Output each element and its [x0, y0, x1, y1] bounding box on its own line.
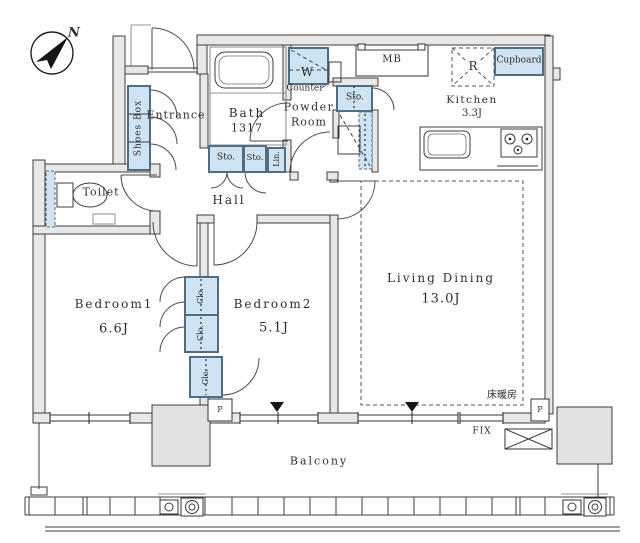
windows	[50, 412, 503, 424]
cupboard-label: Cupboard	[496, 57, 541, 66]
kitchen-counter	[420, 127, 542, 170]
pipe-space-label-2: P	[537, 406, 542, 414]
closet-label-2: Clo.	[197, 325, 205, 341]
pipe-space-label-1: P	[217, 406, 222, 414]
floor-plan: N Shoes Box Entrance Bath 1317 W Counter…	[0, 0, 640, 543]
north-label: N	[68, 27, 80, 40]
bath-size-label: 1317	[231, 123, 263, 134]
marker-triangle-2	[405, 402, 419, 412]
drain-right	[563, 498, 606, 516]
powder-room-door	[290, 132, 330, 172]
pillar-right	[557, 407, 612, 464]
pillar-left	[152, 405, 210, 466]
window-markers	[270, 402, 419, 412]
bedroom2-size-label: 5.1J	[259, 322, 289, 335]
toilet-label: Toilet	[82, 187, 119, 198]
storage-label-2: Sto.	[247, 154, 264, 163]
hall-storage-doors	[211, 172, 266, 193]
toilet-door	[121, 175, 157, 211]
shoes-box-label: Shoes Box	[135, 100, 144, 156]
bedroom2-label: Bedroom2	[234, 298, 313, 310]
meter-box-label: MB	[382, 55, 402, 65]
living-dining-size-label: 13.0J	[421, 293, 460, 306]
closet-doors-bedroom1	[160, 277, 185, 352]
counter-label: Counter	[286, 85, 323, 94]
living-dining-door	[337, 181, 375, 219]
bedroom2-window	[240, 412, 318, 424]
hall-label: Hall	[212, 194, 245, 206]
balcony-partition	[31, 423, 47, 495]
shoes-box-doors	[150, 90, 177, 170]
closet-label-3: Clo.	[202, 369, 210, 385]
bedroom2-door	[214, 222, 257, 265]
fix-window	[460, 412, 503, 424]
bedroom1-size-label: 6.6J	[99, 323, 129, 336]
compass-icon	[31, 32, 73, 74]
storage-label-1: Sto.	[217, 154, 235, 163]
kitchen-storage-door	[372, 88, 394, 110]
vanity-cabinet	[340, 112, 372, 169]
powder-room-label-1: Powder	[284, 102, 335, 113]
bath-label: Bath	[229, 107, 266, 119]
bedroom1-window	[50, 412, 130, 424]
powder-room-label-2: Room	[291, 117, 327, 128]
living-window	[358, 412, 458, 424]
escape-hatch	[505, 429, 552, 449]
living-dining-label: Living Dining	[387, 272, 495, 284]
toilet-counter	[46, 171, 55, 227]
closet-label-1: Clo.	[197, 288, 205, 304]
entrance-label: Entrance	[146, 110, 205, 121]
fix-window-label: FIX	[472, 428, 491, 437]
marker-triangle-1	[270, 402, 284, 412]
washing-machine-label: W	[301, 66, 313, 78]
kitchen-size-label: 3.3J	[462, 109, 482, 119]
floor-heating-label: 床暖房	[487, 391, 517, 401]
entrance-door	[152, 28, 194, 70]
refrigerator-label: R	[465, 60, 480, 72]
linen-label: Lin.	[273, 151, 281, 167]
stove	[497, 129, 538, 166]
kitchen-label: Kitchen	[446, 95, 498, 106]
closet-door-bedroom2	[222, 358, 259, 395]
drain-left	[160, 498, 203, 516]
storage-label-3: Sto.	[346, 94, 364, 103]
balcony-railing	[25, 494, 620, 531]
bedroom1-label: Bedroom1	[75, 298, 154, 310]
balcony-label: Balcony	[290, 456, 348, 467]
